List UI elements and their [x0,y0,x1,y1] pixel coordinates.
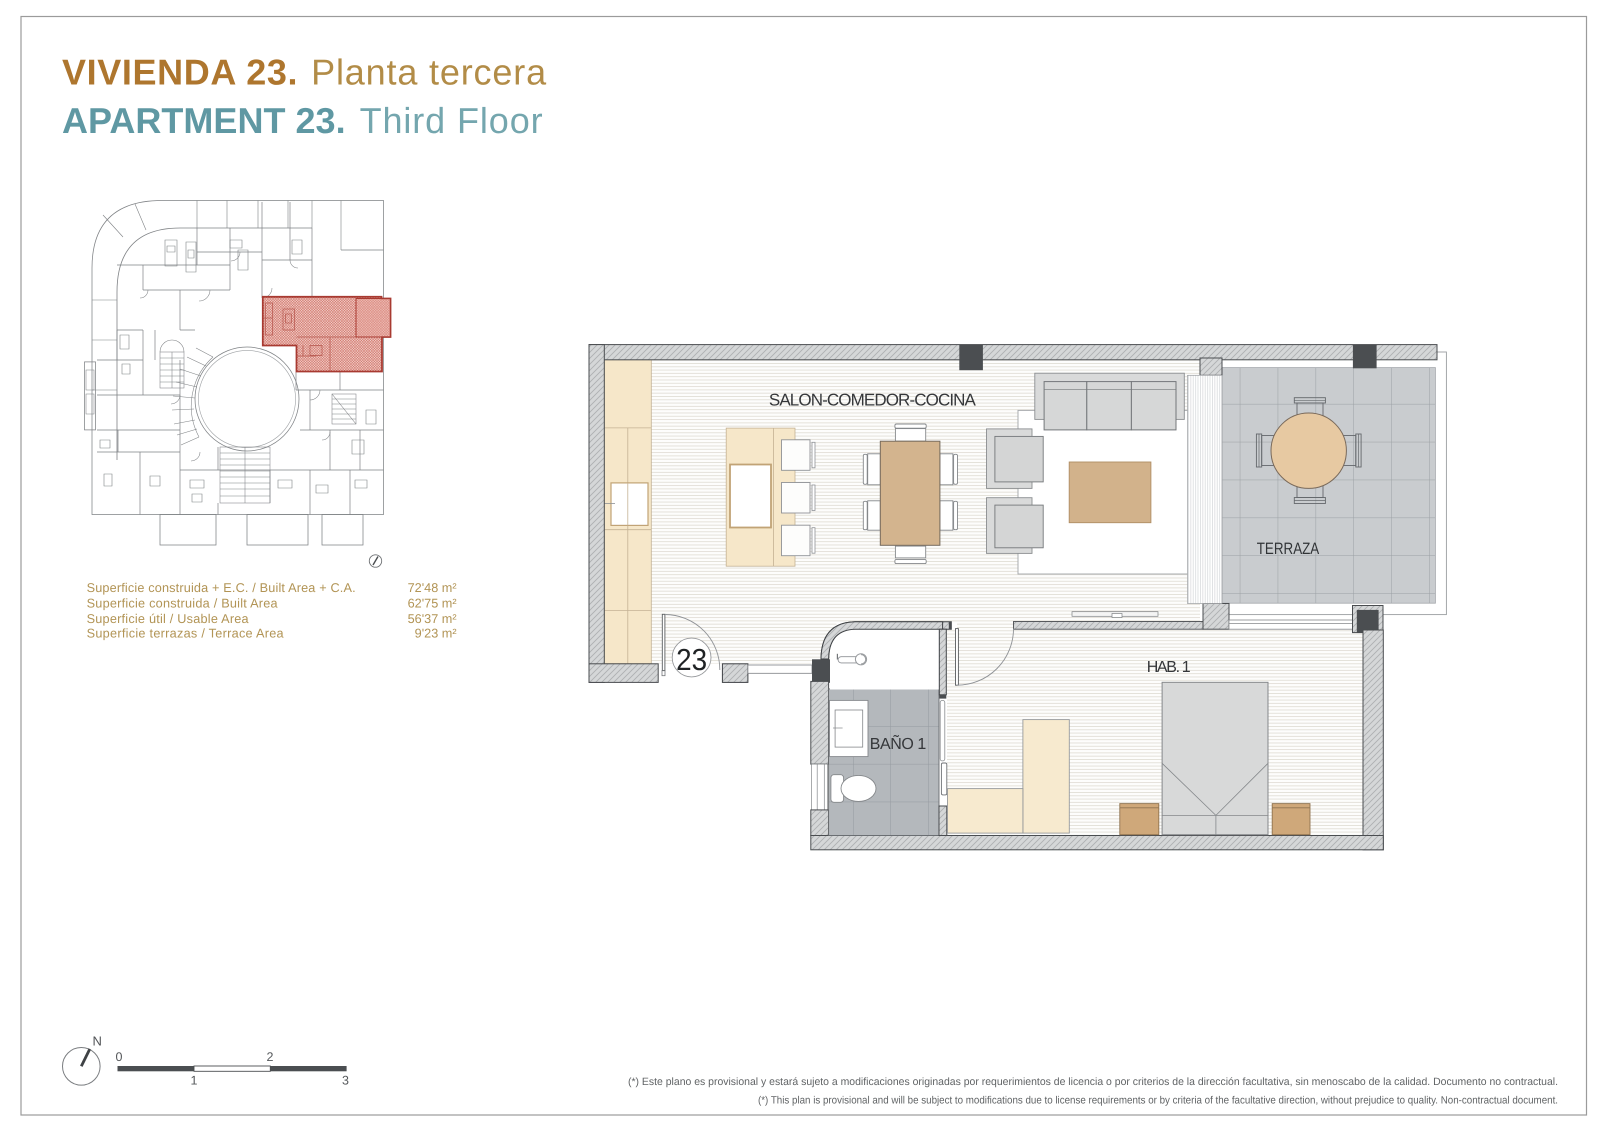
svg-text:SALON-COMEDOR-COCINA: SALON-COMEDOR-COCINA [769,391,977,410]
svg-text:62'75 m²: 62'75 m² [408,597,457,611]
svg-text:BAÑO 1: BAÑO 1 [870,734,927,753]
svg-text:Superficie útil / Usable Area: Superficie útil / Usable Area [87,612,250,626]
svg-text:1: 1 [191,1074,198,1088]
svg-text:3: 3 [342,1074,349,1088]
svg-text:Superficie construida + E.C. /: Superficie construida + E.C. / Built Are… [87,581,356,595]
svg-text:(*) This plan is provisional a: (*) This plan is provisional and will be… [758,1095,1558,1107]
svg-text:TERRAZA: TERRAZA [1257,540,1320,558]
svg-text:2: 2 [267,1050,274,1064]
svg-text:56'37 m²: 56'37 m² [408,612,457,626]
svg-text:23: 23 [676,643,707,677]
svg-text:Superficie construida / Built: Superficie construida / Built Area [87,597,279,611]
svg-text:9'23 m²: 9'23 m² [415,626,457,640]
svg-text:APARTMENT 23.Third Floor: APARTMENT 23.Third Floor [62,100,543,141]
svg-text:HAB. 1: HAB. 1 [1147,659,1191,676]
svg-text:0: 0 [116,1050,123,1064]
svg-text:Superficie terrazas / Terrace: Superficie terrazas / Terrace Area [87,626,285,640]
svg-text:N: N [93,1034,102,1049]
svg-text:(*) Este plano es provisional: (*) Este plano es provisional y estará s… [628,1076,1558,1088]
svg-text:72'48 m²: 72'48 m² [408,581,457,595]
